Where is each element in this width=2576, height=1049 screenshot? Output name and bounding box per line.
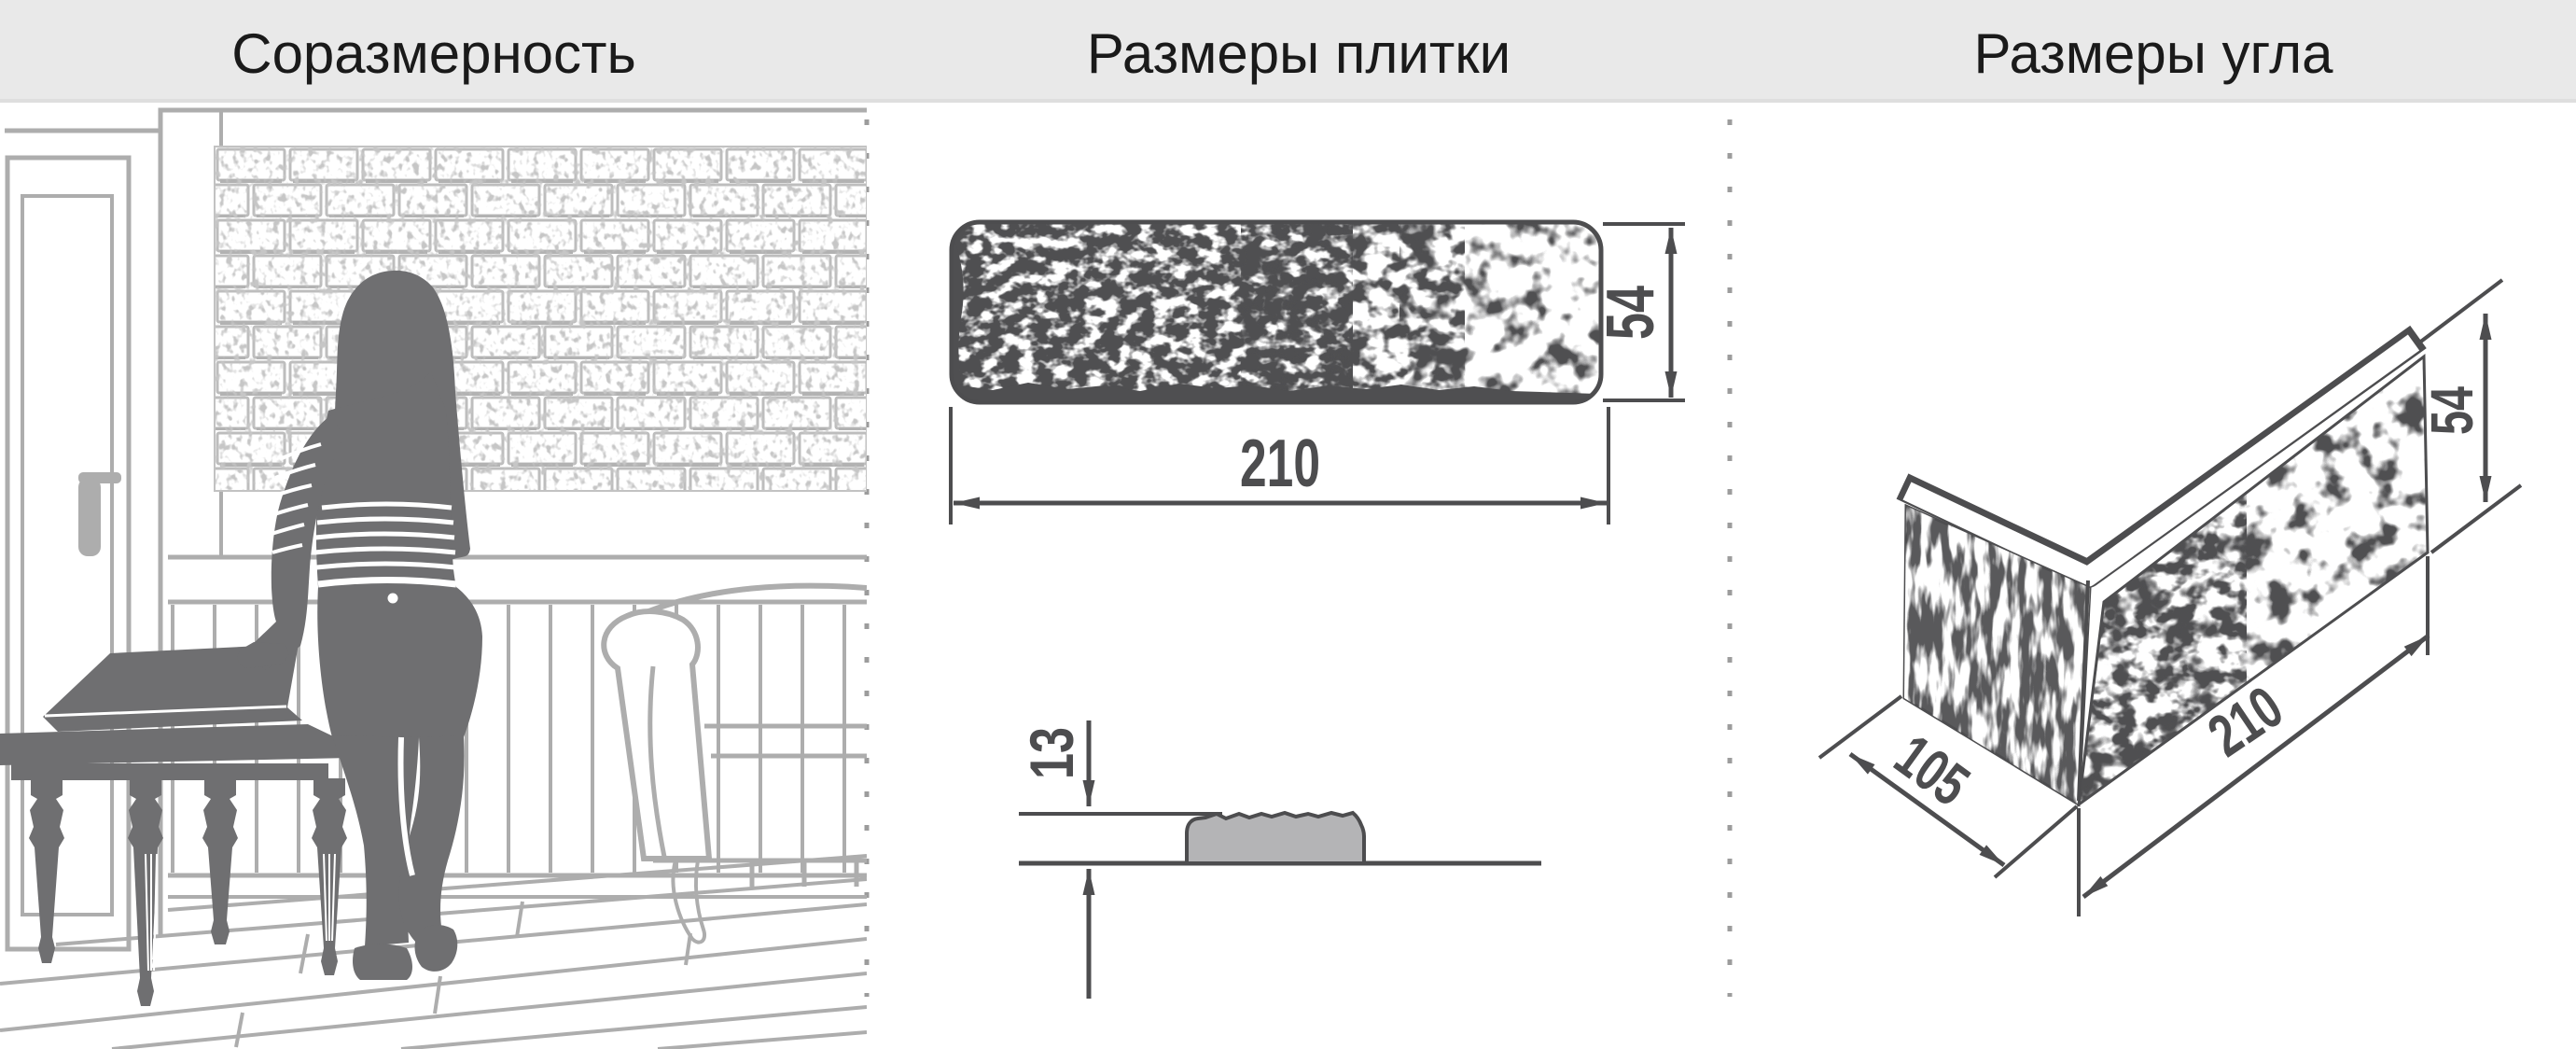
woman-shoe-far: [415, 925, 458, 972]
woman-hips: [317, 587, 482, 738]
table-apron: [11, 763, 328, 780]
tile-profile-view: 13: [1017, 720, 1541, 999]
section-title-tile-dimensions: Размеры плитки: [1087, 22, 1511, 85]
section-title-proportion: Соразмерность: [231, 22, 636, 85]
door: [7, 158, 129, 949]
tile-front-view: 210 54: [951, 222, 1685, 524]
tile-profile-shape: [1187, 813, 1364, 863]
sofa-front-leg: [673, 860, 704, 943]
dimension-height-54: 54: [1594, 224, 1685, 400]
interior-scene: [0, 110, 867, 1049]
dimension-thickness-13: 13: [1017, 720, 1089, 999]
header-band: Соразмерность Размеры плитки Размеры угл…: [0, 0, 2576, 103]
tile-width-label: 210: [1240, 427, 1320, 501]
tile-dimensions-infographic: Соразмерность Размеры плитки Размеры угл…: [0, 0, 2576, 1049]
tile-thickness-label: 13: [1017, 727, 1086, 779]
door-handle-plate: [78, 478, 101, 556]
corner-piece-view: 54 210 105: [1819, 280, 2521, 916]
woman-shoe-near: [353, 944, 412, 981]
dimension-corner-height-54: 54: [2418, 280, 2521, 552]
section-title-corner-dimensions: Размеры угла: [1974, 22, 2334, 85]
tile-height-label: 54: [1594, 286, 1668, 340]
dimension-width-210: 210: [951, 407, 1608, 524]
tile-texture: [952, 222, 1601, 402]
header-divider: [0, 99, 2576, 103]
corner-height-label: 54: [2418, 386, 2485, 435]
jeans-button: [388, 594, 398, 604]
